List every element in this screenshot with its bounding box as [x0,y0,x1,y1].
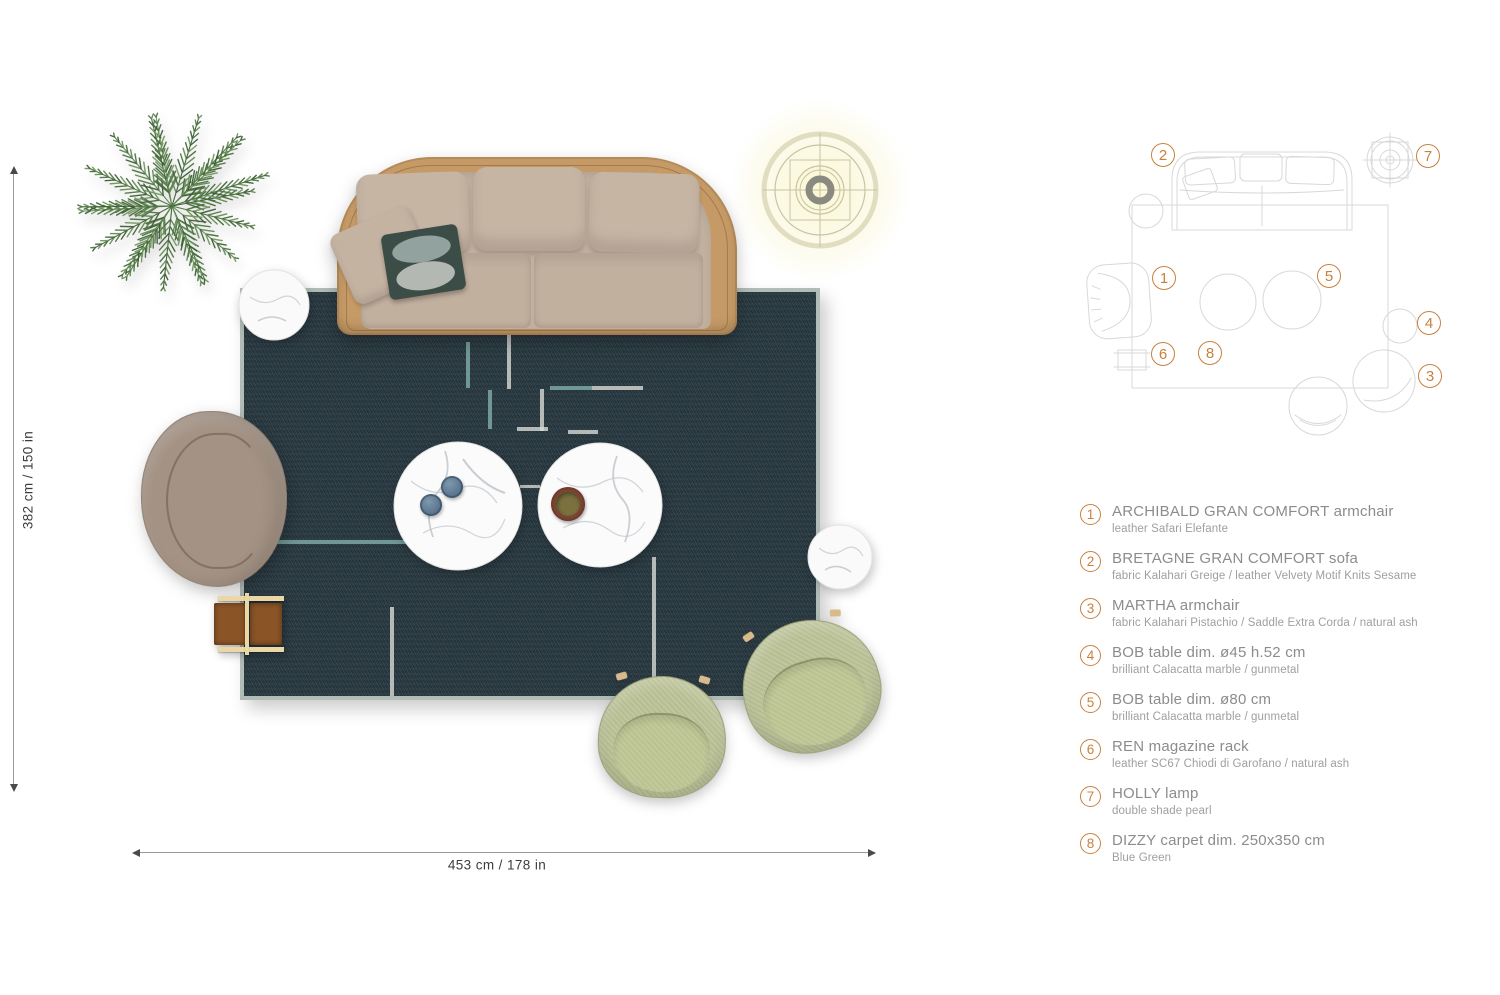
carpet-pattern-line [540,389,544,431]
blue-dish [420,494,442,516]
legend-title: ARCHIBALD GRAN COMFORT armchair [1112,504,1394,521]
rack-wood-bar [218,647,284,652]
legend-subtitle: leather Safari Elefante [1112,523,1394,536]
carpet-pattern-line [488,390,492,429]
width-dimension-label: 453 cm / 178 in [448,858,546,873]
legend-subtitle: leather SC67 Chiodi di Garofano / natura… [1112,758,1349,771]
legend-item-2: 2 BRETAGNE GRAN COMFORT sofa fabric Kala… [1080,551,1500,582]
legend-item-6: 6 REN magazine rack leather SC67 Chiodi … [1080,739,1500,770]
legend-item-8: 8 DIZZY carpet dim. 250x350 cm Blue Gree… [1080,833,1500,864]
schematic-badge-3: 3 [1418,364,1442,388]
schematic-floor-plan [1075,108,1465,448]
sofa-back-cushion [473,167,585,251]
sofa-back-cushion [588,172,700,255]
dimension-arrow-down-icon [10,784,18,792]
legend-title: BRETAGNE GRAN COMFORT sofa [1112,551,1416,568]
legend-badge-5: 5 [1080,692,1101,713]
legend-item-5: 5 BOB table dim. ø80 cm brilliant Calaca… [1080,692,1500,723]
legend-item-4: 4 BOB table dim. ø45 h.52 cm brilliant C… [1080,645,1500,676]
legend-badge-4: 4 [1080,645,1101,666]
legend-item-3: 3 MARTHA armchair fabric Kalahari Pistac… [1080,598,1500,629]
height-dimension-line [13,172,14,790]
rack-wood-bar [245,593,249,655]
bretagne-sofa [337,157,737,335]
palm-plant [40,80,296,346]
legend-title: HOLLY lamp [1112,786,1212,803]
pillow-pattern-shape [394,257,457,294]
dizzy-carpet [240,288,820,700]
carpet-pattern-line [466,342,470,388]
legend-title: REN magazine rack [1112,739,1349,756]
legend-subtitle: Blue Green [1112,852,1325,865]
dimension-arrow-right-icon [868,849,876,857]
decor-bowl [551,487,585,521]
sofa-seat-cushion [534,253,703,328]
carpet-pattern-line [592,386,643,390]
carpet-pattern-line [652,557,656,696]
dimension-arrow-left-icon [132,849,140,857]
width-dimension-line [137,852,875,853]
sofa-pillow-patterned [380,223,466,300]
archibald-armchair [139,410,288,589]
carpet-pattern-line [568,430,598,434]
carpet-pattern-line [550,386,592,390]
legend-subtitle: double shade pearl [1112,805,1212,818]
height-dimension-label: 382 cm / 150 in [21,431,36,529]
carpet-pattern-line [507,330,511,389]
chair-seat [754,647,877,757]
legend-title: BOB table dim. ø45 h.52 cm [1112,645,1306,662]
bob-table-80-left [393,441,523,571]
holly-lamp [758,128,882,252]
schematic-badge-7: 7 [1416,144,1440,168]
legend-badge-1: 1 [1080,504,1101,525]
legend-subtitle: brilliant Calacatta marble / gunmetal [1112,711,1299,724]
rack-wood-bar [218,596,284,601]
legend-item-7: 7 HOLLY lamp double shade pearl [1080,786,1500,817]
dimension-arrow-up-icon [10,166,18,174]
ren-magazine-rack [212,593,286,655]
legend-subtitle: brilliant Calacatta marble / gunmetal [1112,664,1306,677]
legend-title: DIZZY carpet dim. 250x350 cm [1112,833,1325,850]
chair-seat [612,711,710,793]
legend-badge-3: 3 [1080,598,1101,619]
blue-dish [441,476,463,498]
legend-title: BOB table dim. ø80 cm [1112,692,1299,709]
legend-badge-8: 8 [1080,833,1101,854]
chair-wood-foot [830,609,841,616]
legend-subtitle: fabric Kalahari Greige / leather Velvety… [1112,570,1416,583]
furniture-plan-sheet: { "dimensions": { "height_label": "382 c… [0,0,1500,995]
schematic-badge-8: 8 [1198,341,1222,365]
legend-title: MARTHA armchair [1112,598,1418,615]
carpet-pattern-line [390,607,394,696]
legend-badge-6: 6 [1080,739,1101,760]
carpet-pattern-line [517,427,548,431]
bob-table-45 [807,524,873,590]
legend-badge-2: 2 [1080,551,1101,572]
schematic-badge-1: 1 [1152,266,1176,290]
rack-leather-panel [250,603,282,645]
schematic-badge-2: 2 [1151,143,1175,167]
schematic-badge-4: 4 [1417,311,1441,335]
armchair-seat-crease [165,432,266,570]
schematic-badge-5: 5 [1317,264,1341,288]
legend-badge-7: 7 [1080,786,1101,807]
bowl-interior [556,492,580,516]
rack-leather-panel [214,603,246,645]
schematic-badge-6: 6 [1151,342,1175,366]
legend-item-1: 1 ARCHIBALD GRAN COMFORT armchair leathe… [1080,504,1500,535]
legend-subtitle: fabric Kalahari Pistachio / Saddle Extra… [1112,617,1418,630]
